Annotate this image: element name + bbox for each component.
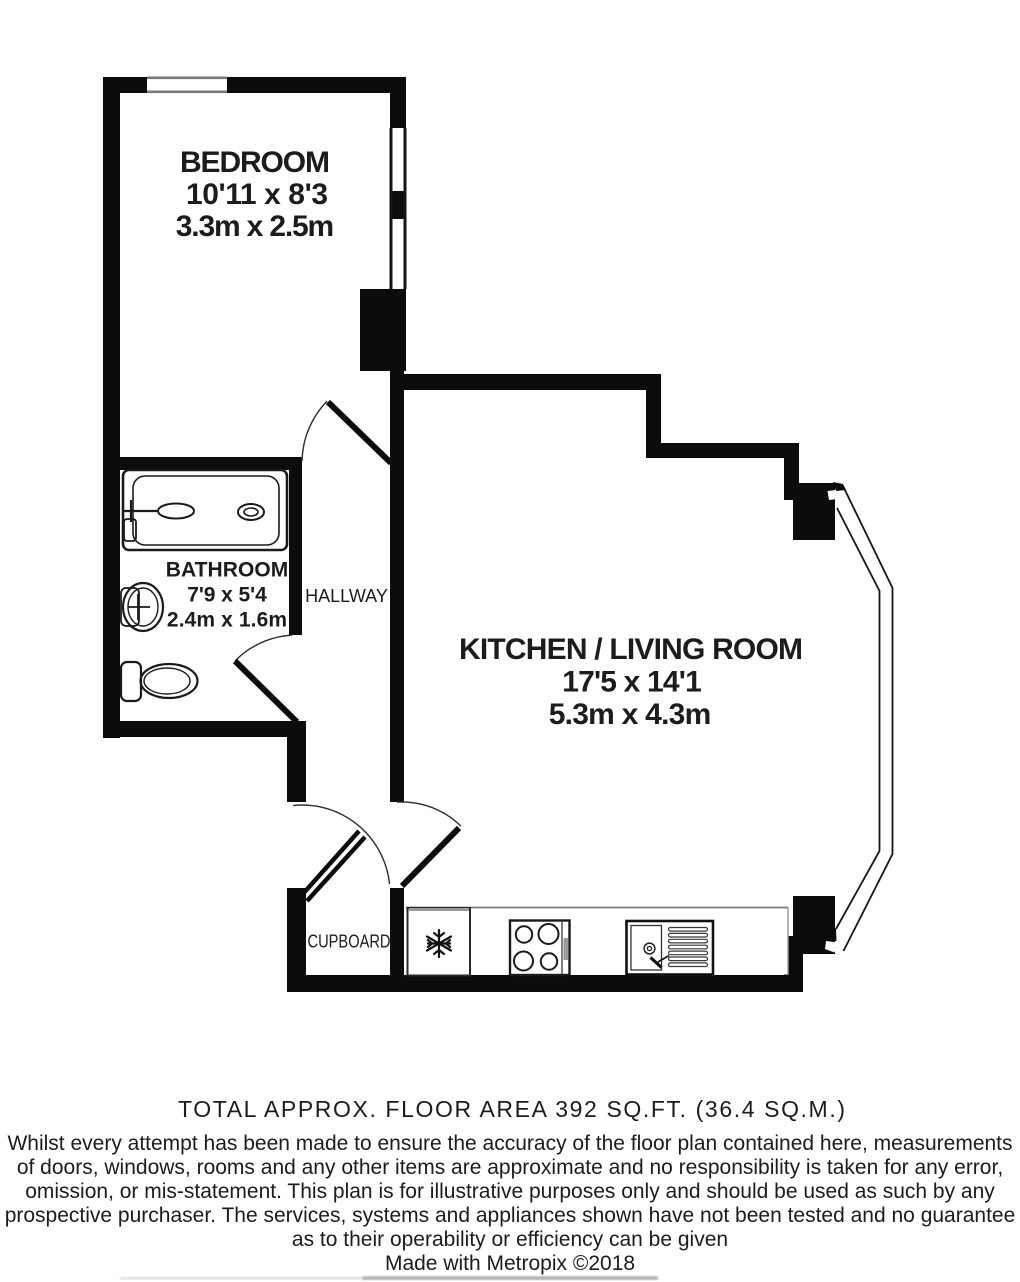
svg-text:TOTAL APPROX. FLOOR AREA 392 S: TOTAL APPROX. FLOOR AREA 392 SQ.FT. (36.… bbox=[178, 1096, 845, 1122]
svg-text:BATHROOM: BATHROOM bbox=[166, 559, 289, 582]
svg-text:17'5 x 14'1: 17'5 x 14'1 bbox=[562, 666, 702, 699]
svg-text:Made with Metropix ©2018: Made with Metropix ©2018 bbox=[385, 1252, 635, 1275]
svg-text:2.4m x 1.6m: 2.4m x 1.6m bbox=[167, 609, 287, 632]
svg-text:7'9 x 5'4: 7'9 x 5'4 bbox=[187, 584, 267, 607]
svg-text:HALLWAY: HALLWAY bbox=[305, 586, 388, 606]
svg-text:prospective purchaser. The ser: prospective purchaser. The services, sys… bbox=[5, 1204, 1016, 1227]
svg-text:3.3m x 2.5m: 3.3m x 2.5m bbox=[176, 210, 334, 243]
svg-text:as to their operability or eff: as to their operability or efficiency ca… bbox=[292, 1228, 728, 1251]
svg-text:CUPBOARD: CUPBOARD bbox=[308, 932, 391, 952]
svg-text:of doors, windows, rooms and a: of doors, windows, rooms and any other i… bbox=[17, 1156, 1003, 1179]
svg-text:omission, or mis-statement. Th: omission, or mis-statement. This plan is… bbox=[25, 1180, 995, 1203]
svg-text:5.3m x 4.3m: 5.3m x 4.3m bbox=[549, 698, 712, 731]
svg-text:10'11 x 8'3: 10'11 x 8'3 bbox=[186, 178, 328, 211]
svg-text:BEDROOM: BEDROOM bbox=[180, 146, 330, 179]
svg-text:KITCHEN / LIVING ROOM: KITCHEN / LIVING ROOM bbox=[459, 633, 803, 666]
svg-text:Whilst every attempt has been: Whilst every attempt has been made to en… bbox=[7, 1132, 1012, 1155]
